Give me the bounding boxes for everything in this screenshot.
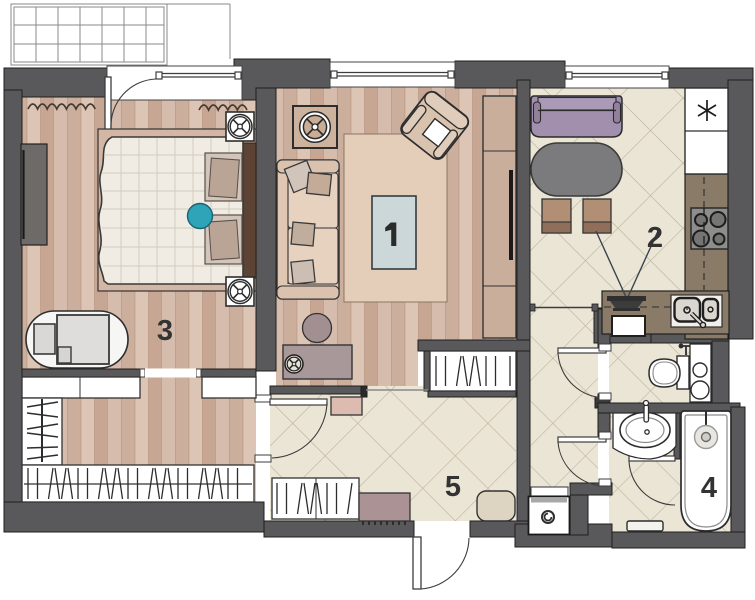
svg-text:3: 3 <box>157 315 173 347</box>
svg-text:4: 4 <box>701 472 717 504</box>
svg-text:5: 5 <box>445 471 461 503</box>
svg-text:2: 2 <box>647 222 663 254</box>
